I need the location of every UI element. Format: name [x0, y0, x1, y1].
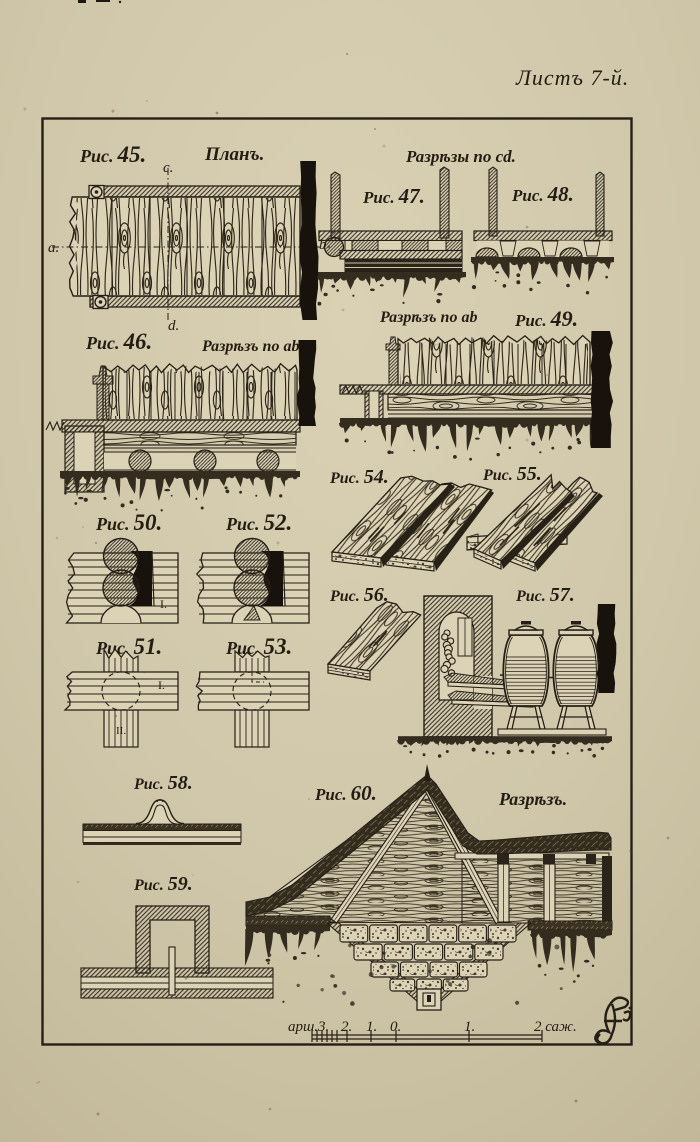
svg-text:II.: II. [116, 725, 126, 737]
svg-text:Рис.55.: Рис.55. [482, 463, 542, 485]
svg-text:Рис.50.: Рис.50. [95, 510, 162, 535]
svg-text:Рис.54.: Рис.54. [329, 466, 389, 488]
svg-text:c.: c. [163, 160, 173, 176]
svg-text:Рис.58.: Рис.58. [133, 772, 193, 794]
svg-text:1.: 1. [464, 1019, 475, 1035]
svg-text:I.: I. [160, 597, 167, 611]
svg-text:Рис.60.: Рис.60. [314, 781, 377, 805]
svg-text:a.: a. [48, 240, 59, 256]
svg-text:Рис.48.: Рис.48. [511, 182, 574, 206]
svg-text:d.: d. [168, 318, 179, 334]
svg-text:Разрѣзъ по ab: Разрѣзъ по ab [379, 309, 477, 326]
svg-text:Разрѣзы по cd.: Разрѣзы по cd. [405, 147, 516, 166]
svg-text:Разрѣзъ.: Разрѣзъ. [498, 789, 567, 809]
svg-text:2 саж.: 2 саж. [534, 1019, 577, 1035]
svg-text:Рис.46.: Рис.46. [85, 329, 152, 354]
svg-text:Рис.52.: Рис.52. [225, 510, 292, 535]
svg-text:I.: I. [158, 678, 165, 692]
svg-text:Разрѣзъ по ab.: Разрѣзъ по ab. [201, 338, 303, 355]
svg-text:Рис.47.: Рис.47. [362, 184, 425, 208]
svg-text:Рис.57.: Рис.57. [515, 584, 575, 606]
svg-text:арш.: арш. [288, 1019, 318, 1035]
svg-text:Планъ.: Планъ. [204, 144, 264, 165]
svg-text:Листъ 7-й.: Листъ 7-й. [515, 65, 629, 90]
svg-text:Рис.56.: Рис.56. [329, 584, 389, 606]
svg-text:Рис.59.: Рис.59. [133, 873, 193, 895]
svg-text:1.: 1. [366, 1019, 377, 1035]
svg-text:Рис.45.: Рис.45. [79, 142, 146, 167]
